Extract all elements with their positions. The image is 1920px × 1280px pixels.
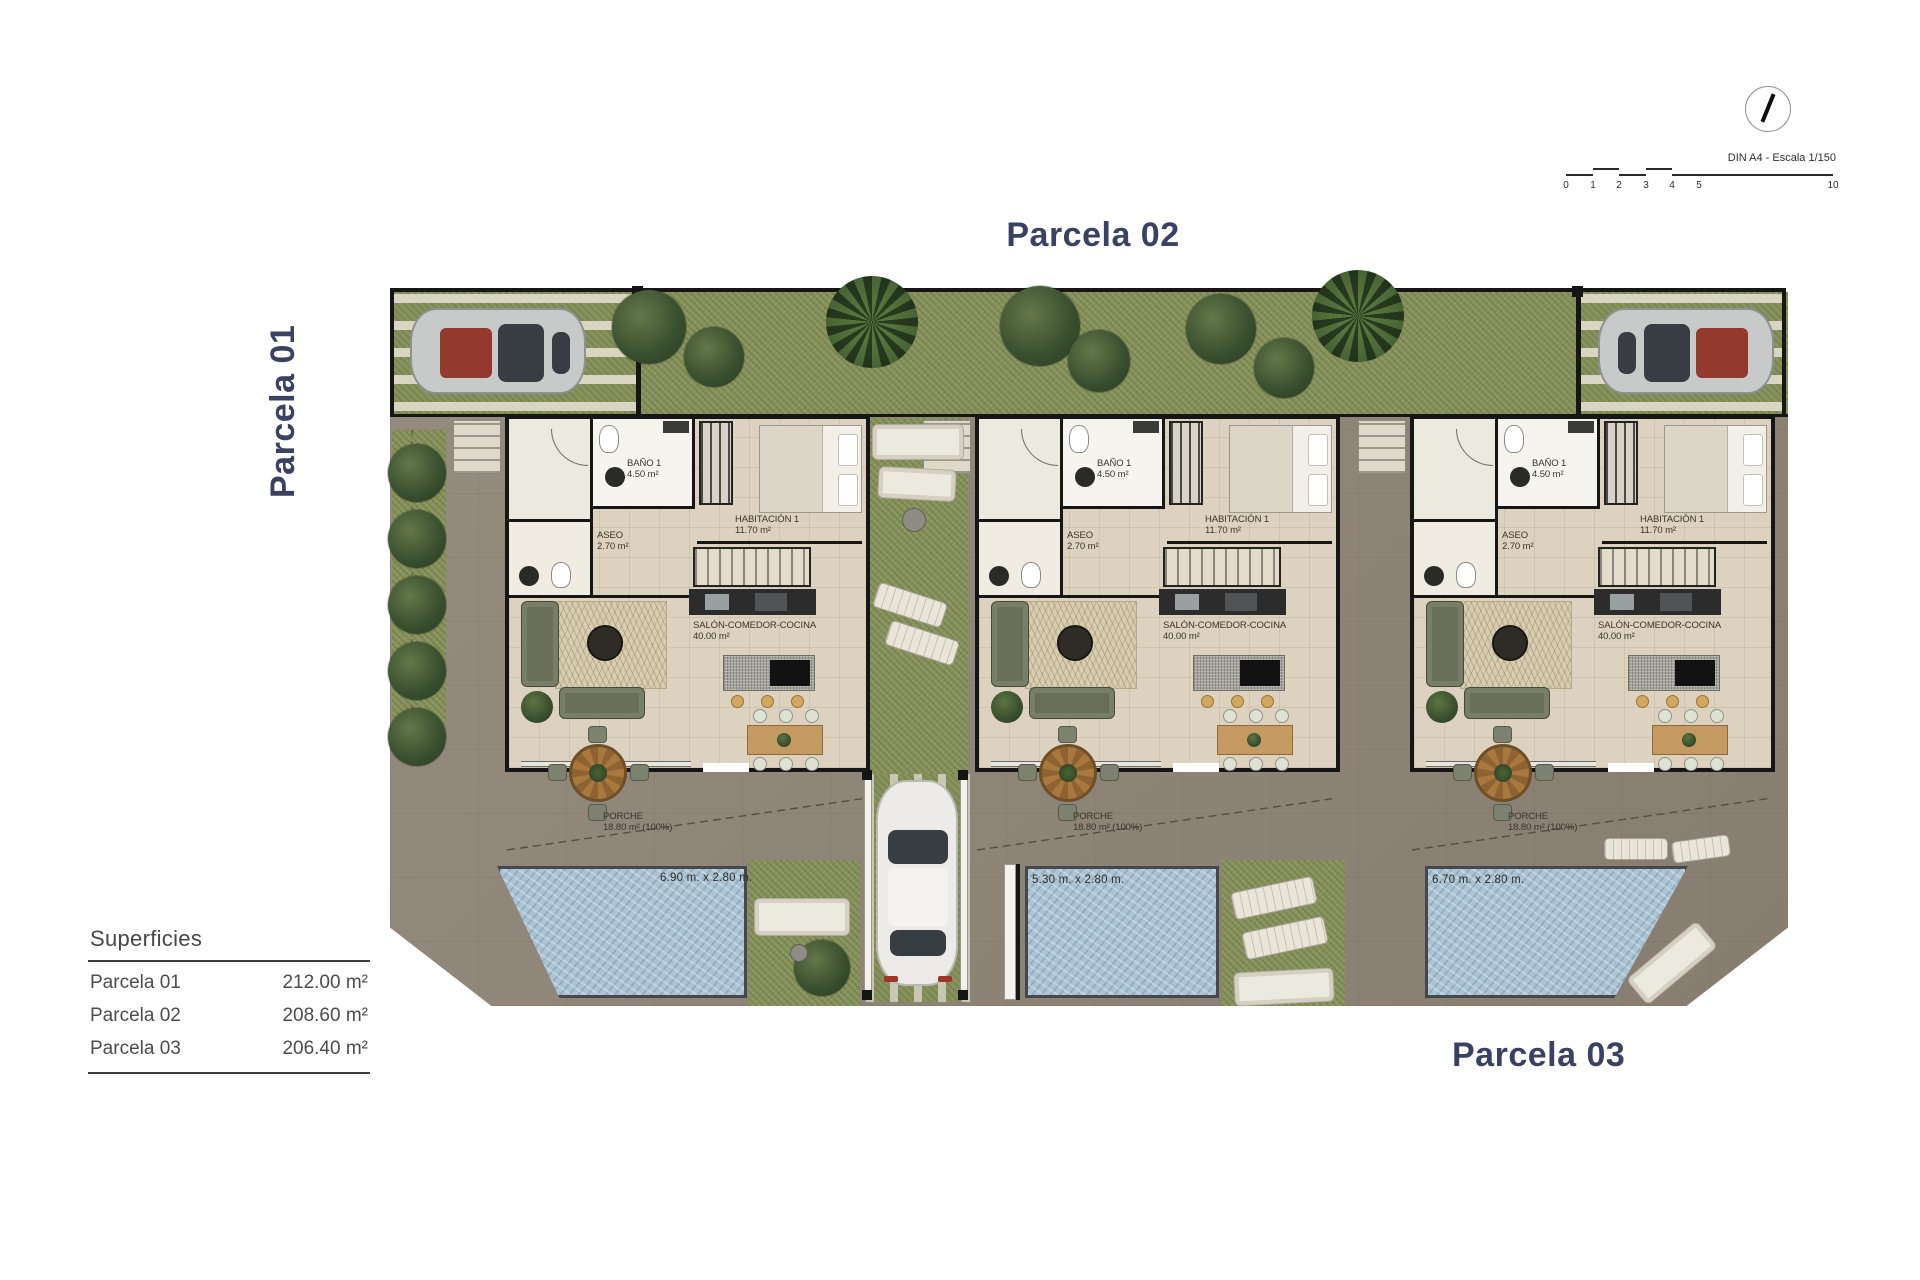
pool-3-dimensions: 6.70 m. x 2.80 m.	[1432, 874, 1524, 886]
dining-chair	[779, 757, 793, 771]
legend-row: Parcela 01 212.00 m²	[90, 972, 368, 994]
legend-rule-bottom	[88, 1072, 370, 1074]
palm-tree-icon	[826, 276, 918, 368]
tree-icon	[1254, 338, 1314, 398]
shower-icon	[1133, 421, 1159, 433]
bedroom-label: HABITACIÓN 111.70 m²	[1205, 515, 1269, 537]
pool-1-dimensions: 6.90 m. x 2.80 m.	[660, 872, 752, 884]
outdoor-sofa	[872, 424, 964, 460]
aseo-label: ASEO2.70 m²	[1067, 531, 1099, 553]
bedroom-label: HABITACIÓN 111.70 m²	[1640, 515, 1704, 537]
dining-chair	[779, 709, 793, 723]
wardrobe	[1169, 421, 1203, 505]
legend-row-value: 208.60 m²	[282, 1005, 368, 1027]
north-needle-icon	[1761, 93, 1776, 122]
outdoor-sofa	[754, 898, 850, 936]
tree-icon	[1068, 330, 1130, 392]
car-cabin	[440, 328, 492, 378]
cooktop-icon	[1675, 660, 1715, 686]
outdoor-side-table	[790, 944, 808, 962]
centerpiece-plant-icon	[777, 733, 791, 747]
sofa	[1029, 687, 1115, 719]
house-unit-2: BAÑO 14.50 m² ASEO2.70 m² HABITACIÓN 111…	[975, 415, 1340, 772]
aseo-room	[979, 519, 1063, 597]
tree-icon	[388, 642, 446, 700]
porch-chair	[1493, 726, 1512, 743]
scale-tick: 2	[1612, 180, 1626, 191]
staircase	[693, 547, 811, 587]
legend-row-value: 206.40 m²	[282, 1038, 368, 1060]
sink-icon	[989, 566, 1009, 586]
porch-chair	[1018, 764, 1037, 781]
interior-wall	[697, 541, 862, 544]
parcela-02-title: Parcela 02	[968, 216, 1218, 255]
porch-chair	[1535, 764, 1554, 781]
sofa	[991, 601, 1029, 687]
tree-icon	[684, 327, 744, 387]
stool	[761, 695, 774, 708]
legend-row: Parcela 03 206.40 m²	[90, 1038, 368, 1060]
pillow	[1308, 434, 1328, 466]
sink-icon	[605, 467, 625, 487]
legend-row-value: 212.00 m²	[282, 972, 368, 994]
porch-table	[1039, 744, 1097, 802]
toilet-icon	[551, 562, 571, 588]
stove-icon	[755, 593, 787, 611]
dining-chair	[1684, 757, 1698, 771]
site-plan-canvas: BAÑO 14.50 m² ASEO2.70 m² HABITACIÓN 111…	[0, 0, 1920, 1280]
kitchen-counter	[689, 589, 816, 615]
aseo-room	[1414, 519, 1498, 597]
porch-chair	[588, 726, 607, 743]
aseo-room	[509, 519, 593, 597]
porch-door	[1173, 763, 1219, 772]
pool-2-dimensions: 5.30 m. x 2.80 m.	[1032, 874, 1124, 886]
sun-lounger	[1604, 838, 1668, 860]
porch-chair	[1453, 764, 1472, 781]
legend-row-label: Parcela 02	[90, 1005, 181, 1027]
legend-row-label: Parcela 01	[90, 972, 181, 994]
car-top-view	[1598, 308, 1774, 394]
scale-bar	[1566, 168, 1833, 176]
shower-icon	[1568, 421, 1594, 433]
legend-row-label: Parcela 03	[90, 1038, 181, 1060]
porch-chair	[1100, 764, 1119, 781]
stool	[1666, 695, 1679, 708]
superficies-legend: Superficies Parcela 01 212.00 m² Parcela…	[88, 926, 370, 1074]
parcela-01-title: Parcela 01	[264, 278, 303, 498]
kitchen-counter	[1594, 589, 1721, 615]
stove-icon	[1660, 593, 1692, 611]
bedroom-label: HABITACIÓN 111.70 m²	[735, 515, 799, 537]
porch-label-1: PORCHE18.80 m² (100%)	[603, 812, 672, 834]
porch-table	[1474, 744, 1532, 802]
cooktop-icon	[770, 660, 810, 686]
plant-icon	[521, 691, 553, 723]
porch-door	[703, 763, 749, 772]
scale-tick-end: 10	[1826, 180, 1840, 191]
tail-light	[884, 976, 898, 982]
scale-tick: 5	[1692, 180, 1706, 191]
stool	[1696, 695, 1709, 708]
wardrobe	[699, 421, 733, 505]
porch-chair	[1058, 726, 1077, 743]
sink-icon	[1510, 467, 1530, 487]
tree-icon	[1186, 294, 1256, 364]
interior-wall	[1602, 541, 1767, 544]
sofa	[521, 601, 559, 687]
living-room-label: SALÓN-COMEDOR-COCINA40.00 m²	[1163, 621, 1286, 643]
dining-chair	[753, 757, 767, 771]
interior-wall	[590, 419, 593, 597]
sink-icon	[1424, 566, 1444, 586]
stool	[1201, 695, 1214, 708]
car-windshield	[1644, 324, 1690, 382]
dining-chair	[753, 709, 767, 723]
blanket	[1230, 426, 1293, 512]
sink-icon	[519, 566, 539, 586]
centerpiece-plant-icon	[1247, 733, 1261, 747]
bathroom-label: BAÑO 14.50 m²	[627, 459, 661, 481]
stool	[1636, 695, 1649, 708]
coffee-table	[1492, 625, 1528, 661]
living-room-label: SALÓN-COMEDOR-COCINA40.00 m²	[693, 621, 816, 643]
sofa	[559, 687, 645, 719]
outdoor-sofa	[1233, 967, 1335, 1006]
aseo-label: ASEO2.70 m²	[1502, 531, 1534, 553]
dining-chair	[1710, 709, 1724, 723]
bathroom-label: BAÑO 14.50 m²	[1532, 459, 1566, 481]
pillow	[1743, 434, 1763, 466]
pillow	[1743, 474, 1763, 506]
dining-chair	[1275, 757, 1289, 771]
legend-heading: Superficies	[90, 926, 370, 952]
scale-tick: 0	[1559, 180, 1573, 191]
car-windshield	[498, 324, 544, 382]
toilet-icon	[1069, 425, 1089, 453]
pillow	[838, 434, 858, 466]
bed	[1664, 425, 1767, 513]
scale-tick: 4	[1665, 180, 1679, 191]
cooktop-icon	[1240, 660, 1280, 686]
kitchen-island	[723, 655, 815, 691]
coffee-table	[587, 625, 623, 661]
tree-icon	[388, 576, 446, 634]
palm-tree-icon	[1312, 270, 1404, 362]
blanket	[760, 426, 823, 512]
kitchen-island	[1193, 655, 1285, 691]
tree-icon	[612, 290, 686, 364]
kitchen-island	[1628, 655, 1720, 691]
scale-caption: DIN A4 - Escala 1/150	[1616, 152, 1836, 164]
dining-chair	[1658, 709, 1672, 723]
car-rear-glass	[1618, 332, 1636, 374]
car-windshield	[888, 830, 948, 864]
kitchen-sink-icon	[1175, 594, 1199, 610]
interior-wall	[1495, 419, 1498, 597]
pillow	[838, 474, 858, 506]
toilet-icon	[599, 425, 619, 453]
stool	[791, 695, 804, 708]
dining-chair	[805, 709, 819, 723]
plant-icon	[1426, 691, 1458, 723]
tree-icon	[388, 510, 446, 568]
bed	[759, 425, 862, 513]
outdoor-sofa	[877, 466, 957, 502]
interior-wall	[1060, 419, 1063, 597]
dining-chair	[1684, 709, 1698, 723]
tree-icon	[388, 444, 446, 502]
north-compass-icon	[1745, 86, 1791, 132]
car-roof	[888, 868, 948, 926]
wardrobe	[1604, 421, 1638, 505]
car-rear-glass	[890, 930, 946, 956]
house-unit-3: BAÑO 14.50 m² ASEO2.70 m² HABITACIÓN 111…	[1410, 415, 1775, 772]
car-rear-glass	[552, 332, 570, 374]
porch-chair	[630, 764, 649, 781]
interior-wall	[509, 595, 695, 598]
aseo-label: ASEO2.70 m²	[597, 531, 629, 553]
car-top-view	[876, 780, 958, 986]
parcela-03-title: Parcela 03	[1452, 1036, 1625, 1075]
porch-label-3: PORCHE18.80 m² (100%)	[1508, 812, 1577, 834]
bed	[1229, 425, 1332, 513]
staircase	[1598, 547, 1716, 587]
bathroom-label: BAÑO 14.50 m²	[1097, 459, 1131, 481]
living-room-label: SALÓN-COMEDOR-COCINA40.00 m²	[1598, 621, 1721, 643]
interior-wall	[1414, 595, 1600, 598]
porch-table	[569, 744, 627, 802]
sofa	[1426, 601, 1464, 687]
porch-chair	[548, 764, 567, 781]
pillow	[1308, 474, 1328, 506]
car-cabin	[1696, 328, 1748, 378]
scale-tick: 3	[1639, 180, 1653, 191]
coffee-table	[1057, 625, 1093, 661]
house-unit-1: BAÑO 14.50 m² ASEO2.70 m² HABITACIÓN 111…	[505, 415, 870, 772]
staircase	[1163, 547, 1281, 587]
toilet-icon	[1504, 425, 1524, 453]
dining-chair	[1249, 709, 1263, 723]
dining-chair	[1223, 757, 1237, 771]
sofa	[1464, 687, 1550, 719]
kitchen-sink-icon	[705, 594, 729, 610]
porch-door	[1608, 763, 1654, 772]
centerpiece-plant-icon	[1682, 733, 1696, 747]
scale-tick: 1	[1586, 180, 1600, 191]
blanket	[1665, 426, 1728, 512]
kitchen-counter	[1159, 589, 1286, 615]
stool	[1231, 695, 1244, 708]
legend-row: Parcela 02 208.60 m²	[90, 1005, 368, 1027]
outdoor-side-table	[902, 508, 926, 532]
dining-chair	[1658, 757, 1672, 771]
interior-wall	[979, 595, 1165, 598]
dining-chair	[1249, 757, 1263, 771]
kitchen-sink-icon	[1610, 594, 1634, 610]
dining-chair	[1223, 709, 1237, 723]
tree-icon	[388, 708, 446, 766]
stool	[1261, 695, 1274, 708]
plant-icon	[991, 691, 1023, 723]
stool	[731, 695, 744, 708]
car-top-view	[410, 308, 586, 394]
dining-chair	[1275, 709, 1289, 723]
shower-icon	[663, 421, 689, 433]
sink-icon	[1075, 467, 1095, 487]
toilet-icon	[1021, 562, 1041, 588]
dining-chair	[805, 757, 819, 771]
toilet-icon	[1456, 562, 1476, 588]
dining-chair	[1710, 757, 1724, 771]
interior-wall	[1167, 541, 1332, 544]
porch-label-2: PORCHE18.80 m² (100%)	[1073, 812, 1142, 834]
tail-light	[938, 976, 952, 982]
stove-icon	[1225, 593, 1257, 611]
